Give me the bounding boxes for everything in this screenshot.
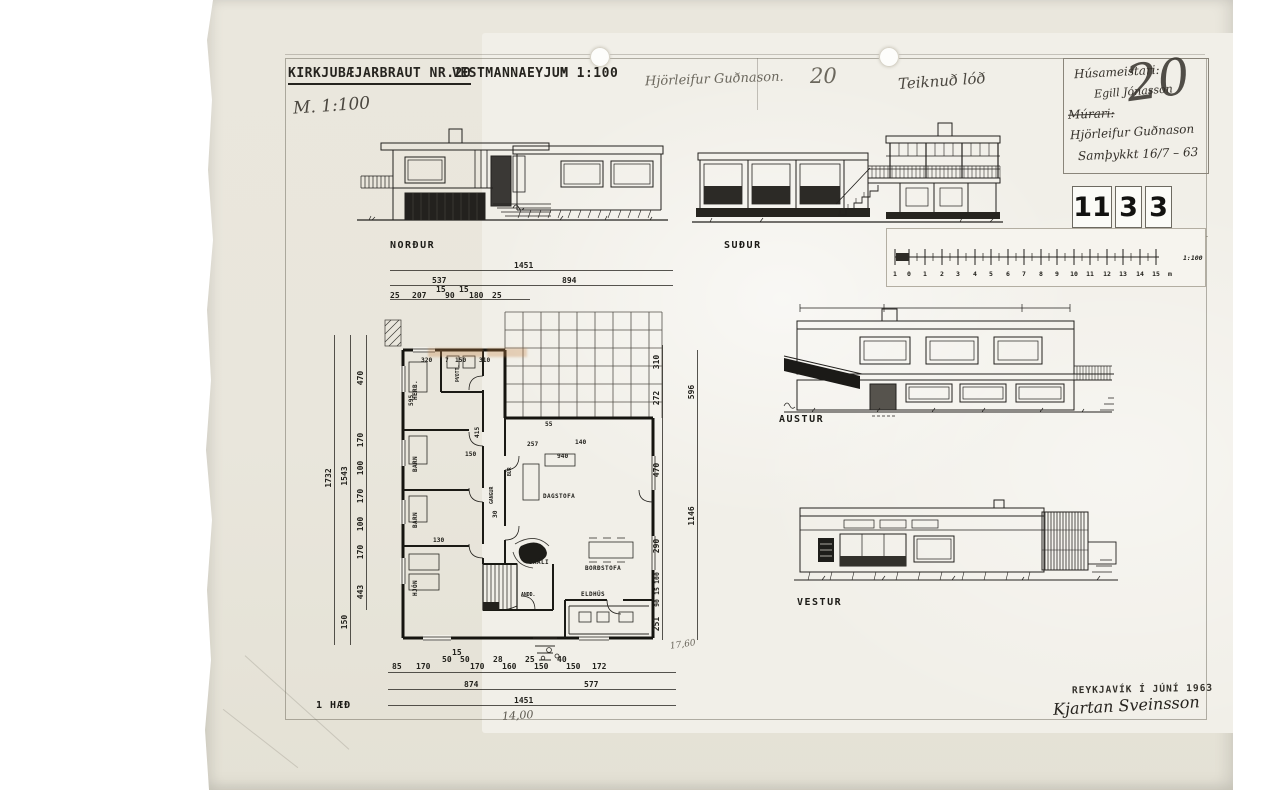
- room-label-bordstofa: BORÐSTOFA: [585, 565, 621, 572]
- south-elevation-drawing: [690, 116, 1005, 236]
- north-elevation-drawing: [355, 116, 670, 236]
- dim-line: [388, 689, 676, 690]
- dim-line: [350, 335, 351, 645]
- drawing-frame-top-line: [285, 54, 1205, 55]
- dim-label: 170: [357, 489, 365, 503]
- dim-label: 272: [653, 391, 661, 405]
- dim-label: 130: [433, 537, 444, 544]
- svg-text:13: 13: [1119, 270, 1127, 278]
- east-elevation-label: AUSTUR: [779, 414, 824, 425]
- handwritten-plot-number: 20: [810, 64, 837, 88]
- svg-text:3: 3: [956, 270, 960, 278]
- dim-label: 150: [465, 451, 476, 458]
- svg-text:7: 7: [1022, 270, 1026, 278]
- stamp-digit: 3: [1145, 186, 1172, 228]
- dim-label: 310: [479, 357, 490, 364]
- dim-label: 50: [442, 656, 452, 664]
- dim-label: 150: [455, 357, 466, 364]
- dim-line: [697, 350, 698, 640]
- east-elevation-drawing: [782, 294, 1114, 422]
- dim-label: 170: [470, 663, 484, 671]
- dim-label: 50: [460, 656, 470, 664]
- room-label-andd: ANDD.: [521, 592, 535, 598]
- dim-label: 874: [464, 681, 478, 689]
- room-label-barn1: BARN: [412, 456, 419, 472]
- svg-text:5: 5: [989, 270, 993, 278]
- dim-label: 1146: [688, 506, 696, 525]
- svg-text:15: 15: [1152, 270, 1160, 278]
- dim-label: 180: [469, 292, 483, 300]
- info-overlay-number: 20: [1122, 47, 1193, 113]
- dim-label: 251: [653, 617, 661, 631]
- svg-text:11: 11: [1086, 270, 1094, 278]
- dim-line: [388, 672, 676, 673]
- room-label-thvott: ÞVOTT.: [455, 365, 461, 382]
- svg-text:1: 1: [893, 270, 897, 278]
- dim-label: 7: [445, 357, 449, 364]
- svg-text:m: m: [1168, 270, 1172, 278]
- svg-text:2: 2: [940, 270, 944, 278]
- room-label-gangur: GANGUR: [489, 487, 495, 504]
- svg-text:9: 9: [1055, 270, 1059, 278]
- dim-label: 15: [459, 286, 469, 294]
- svg-text:8: 8: [1039, 270, 1043, 278]
- dim-label: 85: [392, 663, 402, 671]
- dim-label: 90: [654, 599, 661, 607]
- svg-text:14: 14: [1136, 270, 1144, 278]
- dim-label: 100: [357, 517, 365, 531]
- dim-label: 470: [653, 463, 661, 477]
- dim-label: 940: [557, 453, 568, 460]
- dim-label: 172: [592, 663, 606, 671]
- dim-label: 170: [416, 663, 430, 671]
- dim-label: 207: [412, 292, 426, 300]
- dim-label: 596: [688, 385, 696, 399]
- dim-label: 290: [653, 539, 661, 553]
- dim-label: 170: [357, 433, 365, 447]
- dim-label: 1451: [514, 697, 533, 705]
- info-line-mason-name: Hjörleifur Guðnason: [1070, 122, 1195, 142]
- south-elevation-label: SUÐUR: [724, 240, 762, 251]
- dim-label: 100: [654, 572, 661, 584]
- dim-label: 415: [474, 427, 481, 438]
- drawing-number-stamp: 11 3 3: [1072, 186, 1172, 228]
- dim-label: 30: [492, 510, 499, 518]
- svg-text:6: 6: [1006, 270, 1010, 278]
- title-block-info-box: Húsameistari: Egill Jónasson Múrari: Hjö…: [1063, 58, 1209, 174]
- dim-label: 90: [445, 292, 455, 300]
- svg-text:1:100: 1:100: [1183, 254, 1203, 262]
- floor-plan-drawing: HERB. ÞVOTT. GANGUR BARN BARN HJÓN BÚR S…: [383, 306, 689, 674]
- dim-label: 1543: [341, 466, 349, 485]
- info-line-approved-date: Samþykkt 16/7 – 63: [1078, 145, 1199, 163]
- floor-label: 1 HÆÐ: [316, 700, 351, 711]
- room-label-eldhus: ELDHÚS: [581, 591, 605, 598]
- dim-label: 160: [502, 663, 516, 671]
- svg-text:0: 0: [907, 270, 911, 278]
- dim-label: 25: [492, 292, 502, 300]
- room-label-skali: SKÁLI: [529, 559, 549, 566]
- dim-label: 577: [584, 681, 598, 689]
- punch-hole: [590, 47, 610, 67]
- west-elevation-drawing: [792, 490, 1120, 605]
- info-line-murari: Múrari:: [1068, 106, 1115, 122]
- dim-label: 150: [341, 615, 349, 629]
- sheet-title: KIRKJUBÆJARBRAUT NR.20: [288, 66, 471, 85]
- dim-line: [390, 270, 673, 271]
- dim-label: 320: [421, 357, 432, 364]
- sheet-location: VESTMANNAEYJUM: [452, 66, 569, 81]
- sheet-scale: M 1:100: [560, 66, 618, 81]
- stamp-digit: 3: [1115, 186, 1142, 228]
- dim-label: 1732: [325, 468, 333, 487]
- dim-label: 537: [432, 277, 446, 285]
- room-label-dagstofa: DAGSTOFA: [543, 493, 575, 500]
- dim-line: [390, 285, 673, 286]
- dim-line: [334, 335, 335, 645]
- dim-line: [366, 335, 367, 610]
- dim-label: 55: [545, 421, 553, 428]
- dim-label: 140: [575, 439, 586, 446]
- north-elevation-label: NORÐUR: [390, 240, 435, 251]
- room-label-bur: BÚR: [506, 467, 513, 476]
- dim-line: [390, 299, 530, 300]
- scale-bar: 1 0 1 2 3 4 5 6 7 8 9 10 11 12 13 14 15 …: [886, 228, 1206, 287]
- svg-text:12: 12: [1103, 270, 1111, 278]
- dim-label: 15: [654, 587, 661, 595]
- dim-label: 150: [534, 663, 548, 671]
- room-label-barn2: BARN: [412, 512, 419, 528]
- scanned-drawing-sheet: KIRKJUBÆJARBRAUT NR.20 VESTMANNAEYJUM M …: [0, 0, 1280, 790]
- aging-stain: [428, 348, 483, 357]
- dim-label: 1451: [514, 262, 533, 270]
- dim-label: 257: [527, 441, 538, 448]
- west-elevation-label: VESTUR: [797, 597, 842, 608]
- dim-line: [662, 345, 663, 640]
- dim-label: 100: [357, 461, 365, 475]
- dim-label: 443: [357, 585, 365, 599]
- svg-text:4: 4: [973, 270, 977, 278]
- svg-text:10: 10: [1070, 270, 1078, 278]
- dim-label: 310: [653, 355, 661, 369]
- dim-label: 595: [408, 395, 415, 406]
- svg-text:1: 1: [923, 270, 927, 278]
- dim-label: 470: [357, 371, 365, 385]
- room-label-hjon: HJÓN: [412, 580, 419, 596]
- dim-line: [388, 705, 676, 706]
- scale-bar-ruler: 1 0 1 2 3 4 5 6 7 8 9 10 11 12 13 14 15 …: [887, 229, 1205, 286]
- handwritten-plan-length: 14,00: [502, 708, 534, 723]
- dim-label: 25: [390, 292, 400, 300]
- punch-hole: [879, 47, 899, 67]
- stamp-digit: 11: [1072, 186, 1112, 228]
- aging-stain: [487, 348, 527, 357]
- dim-label: 150: [566, 663, 580, 671]
- dim-label: 170: [357, 545, 365, 559]
- dim-label: 894: [562, 277, 576, 285]
